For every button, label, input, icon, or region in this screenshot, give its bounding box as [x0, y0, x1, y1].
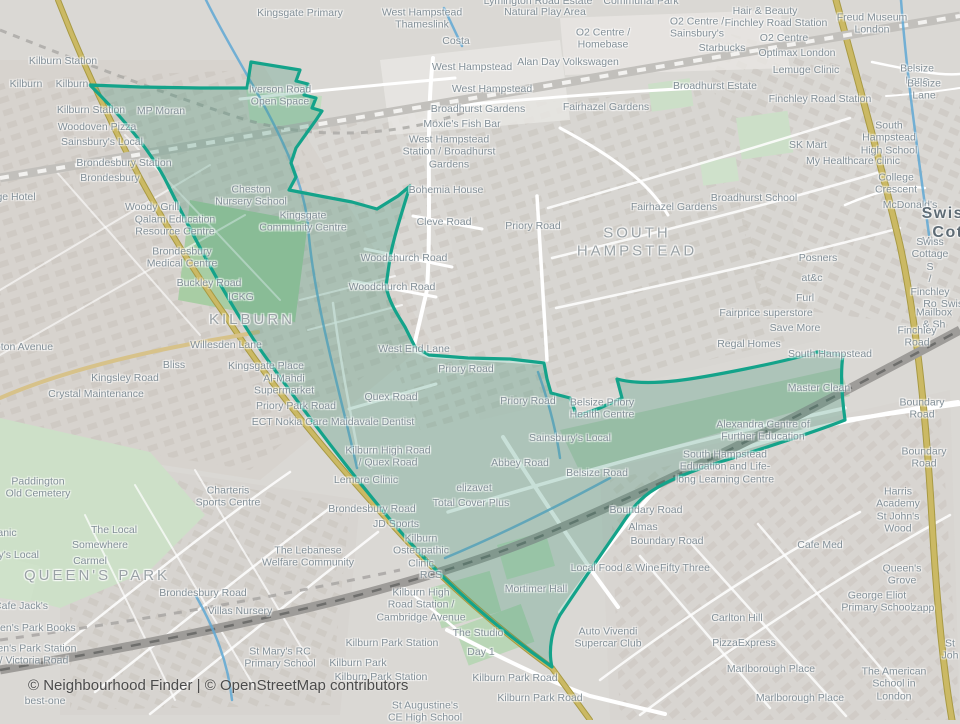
- basemap: [0, 0, 960, 720]
- map-view[interactable]: Kilburn StationKilburnKilburnKingsgate P…: [0, 0, 960, 720]
- attribution: © Neighbourhood Finder | © OpenStreetMap…: [28, 677, 408, 694]
